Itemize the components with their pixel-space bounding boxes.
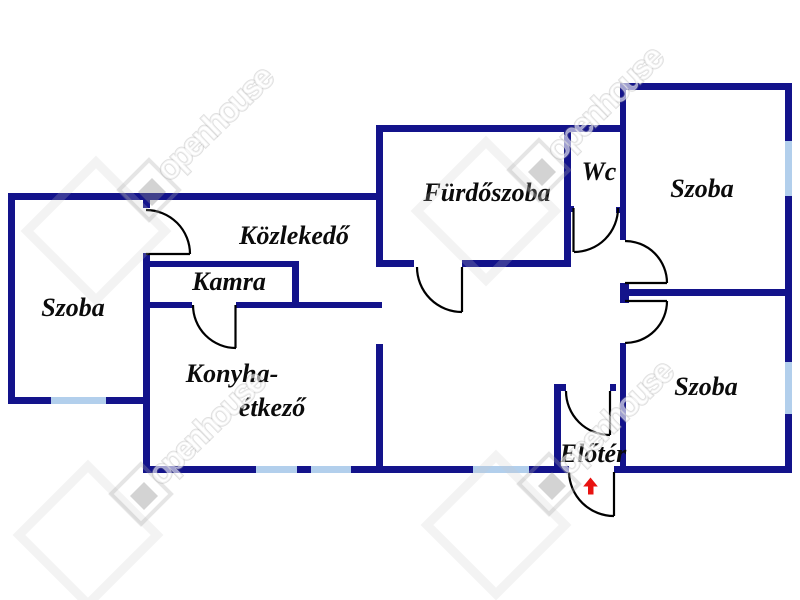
svg-text:Közlekedő: Közlekedő — [238, 221, 351, 250]
svg-text:Szoba: Szoba — [670, 174, 734, 203]
svg-text:Wc: Wc — [582, 157, 617, 186]
svg-text:Szoba: Szoba — [674, 372, 738, 401]
svg-text:Kamra: Kamra — [191, 267, 266, 296]
